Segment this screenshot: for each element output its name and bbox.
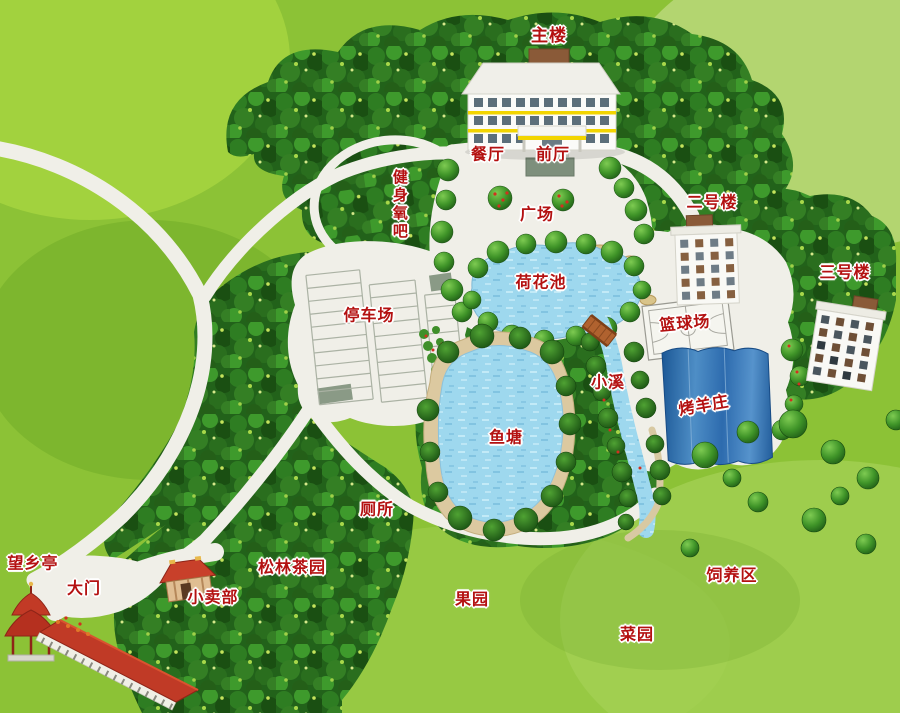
building-2: [670, 214, 743, 305]
resort-map: 主楼 餐厅 前厅 健身氧吧 广场 二号楼 荷花池 三号楼 停车场 篮球场 小溪 …: [0, 0, 900, 713]
map-artwork: [0, 0, 900, 713]
main-building-roof: [462, 63, 620, 94]
main-building-canopy: [518, 126, 586, 136]
roast-lamb-lodge: [658, 345, 776, 467]
main-building: [462, 49, 625, 160]
plaza-steps: [526, 158, 574, 176]
